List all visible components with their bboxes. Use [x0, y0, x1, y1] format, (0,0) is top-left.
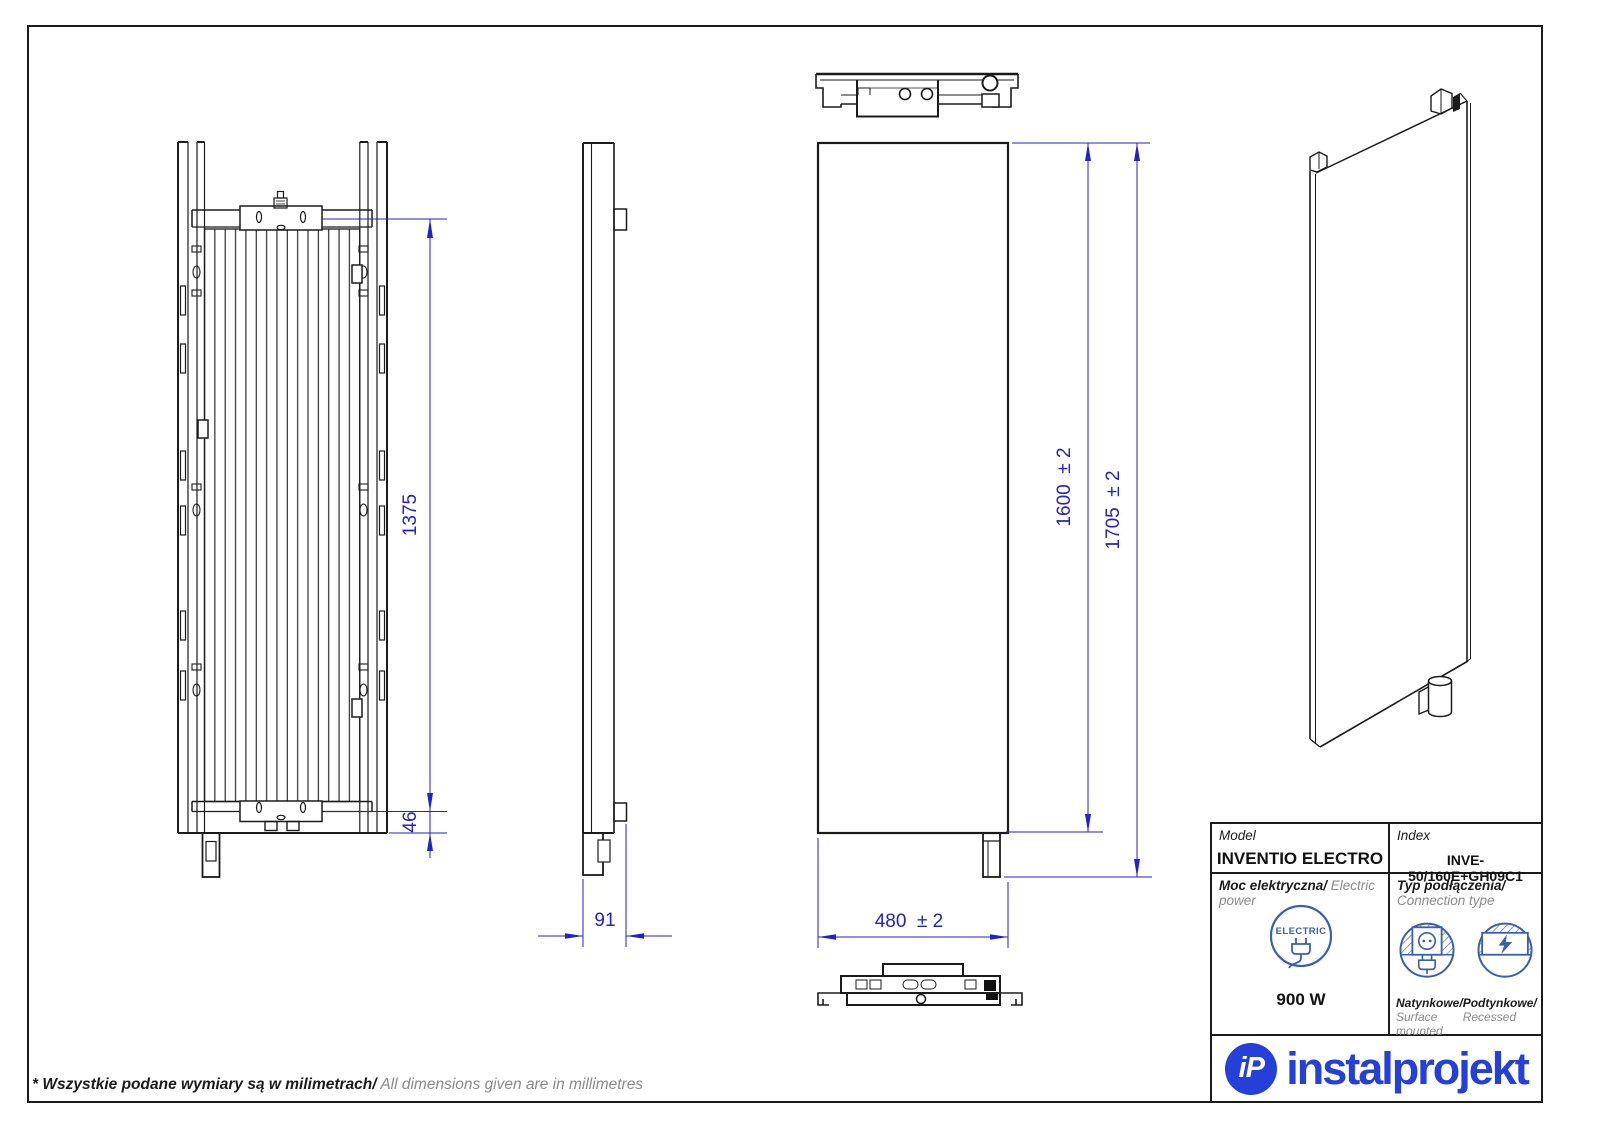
footer-note-pl: * Wszystkie podane wymiary są w milimetr… — [32, 1076, 377, 1093]
model-cell: Model INVENTIO ELECTRO — [1212, 824, 1390, 874]
dimension-texts: 1375 46 91 480 ± 2 1600 ± 2 1705 ± 2 — [400, 447, 1124, 932]
model-label: Model — [1212, 824, 1388, 843]
recessed-label: Podtynkowe/Recessed — [1463, 996, 1537, 1038]
brand-wordmark: instalprojekt — [1286, 1043, 1528, 1095]
dim-width: 480 ± 2 — [875, 911, 944, 932]
title-block: Model INVENTIO ELECTRO Index INVE-50/160… — [1210, 822, 1543, 1103]
power-value: 900 W — [1212, 990, 1390, 1010]
dim-total-height: 1705 ± 2 — [1103, 470, 1124, 549]
dim-depth: 91 — [594, 910, 615, 931]
connection-label-pl: Typ podłączenia/ — [1397, 878, 1505, 893]
view-bottom-section — [818, 964, 1022, 1005]
footer-note: * Wszystkie podane wymiary są w milimetr… — [32, 1076, 643, 1094]
recessed-icon — [1473, 920, 1537, 984]
datasheet-page: 1375 46 91 480 ± 2 1600 ± 2 1705 ± 2 Mod… — [0, 0, 1600, 1131]
view-back — [178, 142, 387, 877]
view-top-section — [816, 74, 1018, 117]
brand-logo: iP instalprojekt — [1225, 1043, 1528, 1095]
heater-cylinder — [1429, 677, 1452, 717]
electric-icon: ELECTRIC — [1261, 898, 1341, 989]
dim-back-height: 1375 — [400, 494, 421, 536]
view-side — [583, 143, 627, 875]
view-3d — [1310, 89, 1471, 747]
footer-note-en: All dimensions given are in millimetres — [377, 1076, 643, 1093]
electric-badge-text: ELECTRIC — [1276, 926, 1327, 937]
plug-glyph — [1418, 955, 1434, 974]
index-label: Index — [1390, 824, 1541, 843]
view-front — [818, 143, 1008, 877]
dim-panel-height: 1600 ± 2 — [1054, 447, 1075, 526]
dim-bottom-offset: 46 — [400, 811, 421, 832]
plug-glyph — [1289, 938, 1310, 968]
electric-power-cell: Moc elektryczna/ Electric power ELECTRIC… — [1212, 874, 1390, 1036]
dimension-arrows — [427, 143, 1140, 940]
power-label-pl: Moc elektryczna/ — [1219, 878, 1327, 893]
surface-mounted-icon — [1395, 920, 1459, 984]
connection-label-en: Connection type — [1397, 893, 1495, 908]
logo-cell: iP instalprojekt — [1212, 1036, 1541, 1101]
brand-logo-icon: iP — [1225, 1043, 1277, 1095]
connection-type-cell: Typ podłączenia/ Connection type — [1390, 874, 1541, 1036]
dimension-lines — [322, 143, 1152, 948]
model-value: INVENTIO ELECTRO — [1212, 849, 1388, 869]
index-cell: Index INVE-50/160E+GH09C1 — [1390, 824, 1541, 874]
connection-label: Typ podłączenia/ Connection type — [1390, 874, 1541, 908]
surface-mounted-label: Natynkowe/Surface mounted — [1396, 996, 1463, 1038]
